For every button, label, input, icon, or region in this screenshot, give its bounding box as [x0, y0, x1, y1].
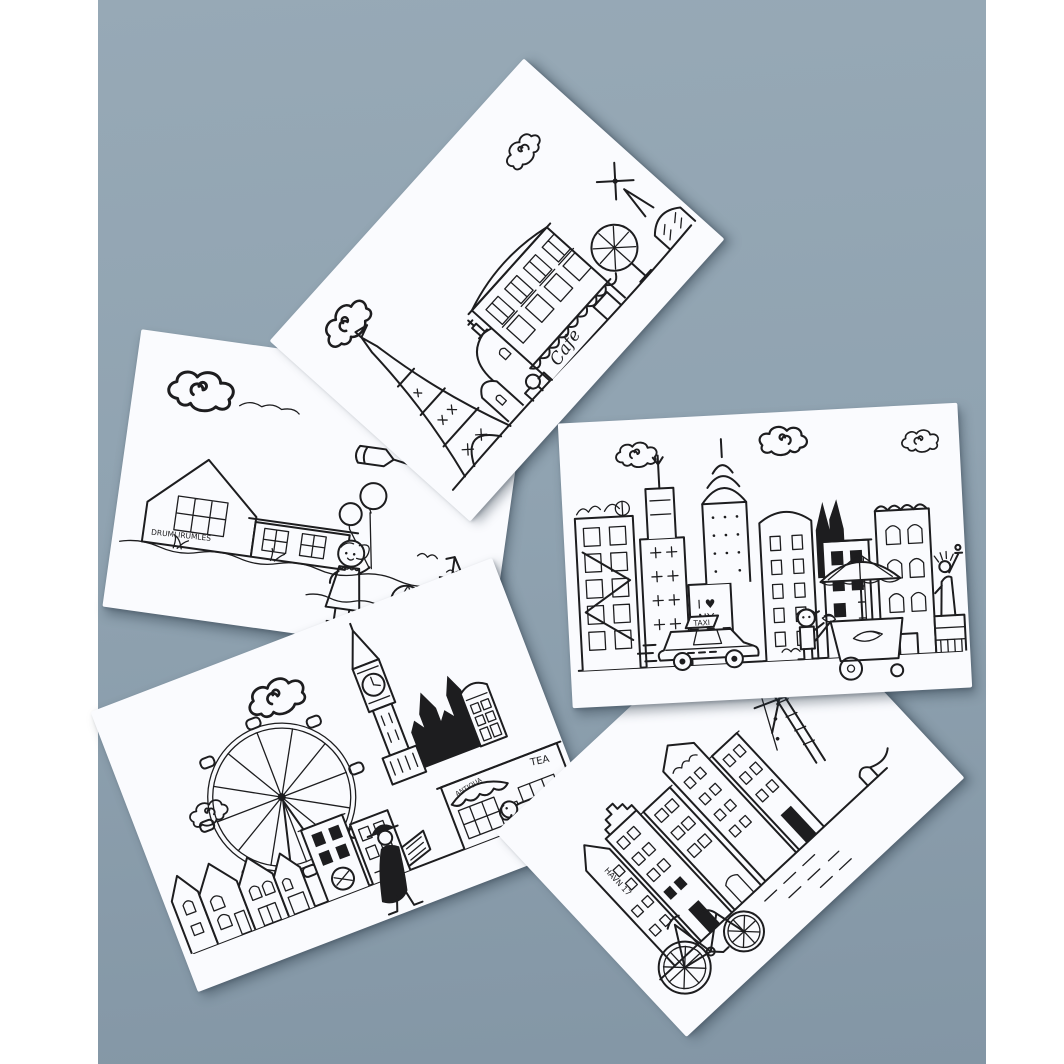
white-border-left — [0, 0, 98, 1064]
stone-arch — [649, 202, 696, 249]
big-ben — [333, 617, 426, 785]
bollard-and-rope — [857, 746, 898, 785]
cloud-icon — [615, 419, 939, 469]
windmill — [597, 163, 658, 222]
taxi-sign: TAXI — [692, 618, 710, 628]
white-border-right — [986, 0, 1064, 1064]
statue-of-liberty — [931, 545, 968, 652]
new-york-illustration: I ♥ NY — [558, 403, 972, 709]
chrysler-building — [699, 438, 750, 584]
cloud-icon — [166, 367, 303, 424]
summer-house: DRUMLIRUMLES — [142, 452, 365, 571]
cloud-icon — [155, 671, 338, 831]
apartment-building — [574, 501, 641, 671]
nyhavn-houses: HAVN 17 — [562, 703, 827, 966]
photo-of-postcards: DRUMLIRUMLES — [0, 0, 1064, 1064]
postcard-new-york: I ♥ NY — [558, 403, 972, 709]
i-love-ny-graffiti: I ♥ — [697, 597, 716, 612]
